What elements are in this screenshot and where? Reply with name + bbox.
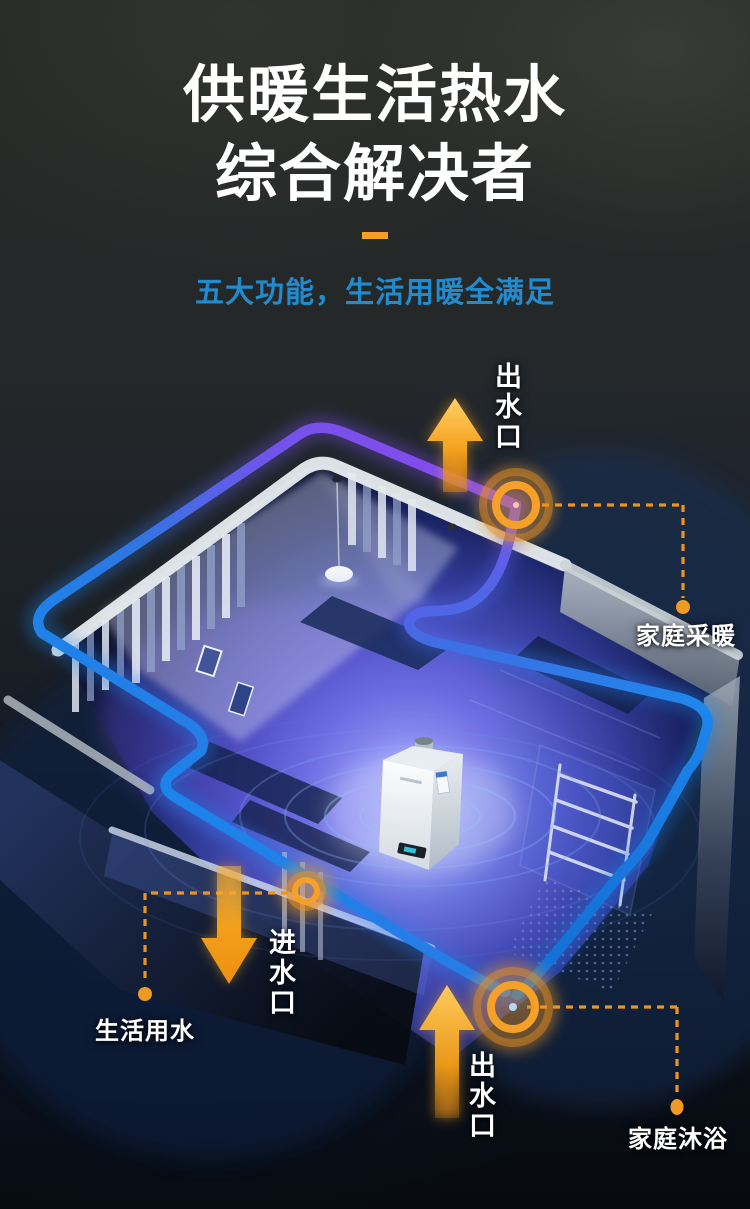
label-home-heating: 家庭采暖 (636, 616, 736, 651)
bottom-fade (0, 1020, 750, 1209)
promo-page: 供暖生活热水 综合解决者 五大功能，生活用暖全满足 (0, 0, 750, 1209)
label-inlet: 进水口 (266, 928, 293, 1018)
label-home-bath: 家庭沐浴 (628, 1119, 728, 1154)
label-outlet-top: 出水口 (492, 362, 519, 452)
label-outlet-bottom: 出水口 (466, 1051, 493, 1141)
label-domestic-water: 生活用水 (95, 1011, 195, 1046)
marker-inlet (278, 863, 334, 919)
